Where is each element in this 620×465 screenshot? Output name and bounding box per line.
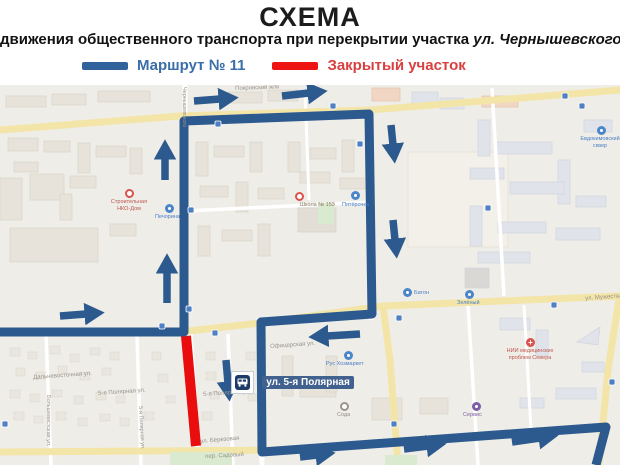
- bus-stop-label: ул. 5-я Полярная: [262, 376, 354, 389]
- zeleny-poi-label: Зелёный: [457, 300, 480, 307]
- legend-closed-label: Закрытый участок: [327, 57, 465, 74]
- bus-icon: [235, 375, 250, 390]
- rusmarket-poi-icon: [344, 351, 353, 360]
- legend: Маршрут № 11 Закрытый участок: [82, 57, 466, 74]
- rusmarket-poi-label: Рус Хозмаркет: [326, 361, 364, 368]
- street-label: Чернышевского: [181, 87, 187, 127]
- servis-poi-icon: [472, 402, 481, 411]
- page-title: СХЕМА: [0, 2, 620, 33]
- header: СХЕМА движения общественного транспорта …: [0, 0, 620, 85]
- medical-poi-label: НИИ медицинских проблем Севера: [500, 348, 560, 361]
- pyaterochka-poi-label: Пятёрочка: [342, 202, 369, 209]
- subtitle-text: движения общественного транспорта при пе…: [0, 31, 473, 48]
- baton-poi-label: Батон: [414, 290, 429, 297]
- skver-poi-icon: [597, 126, 606, 135]
- legend-route-label: Маршрут № 11: [137, 57, 245, 74]
- map-svg: [0, 85, 620, 465]
- soda-poi-icon: [340, 402, 349, 411]
- street-label: Большевистская ул.: [45, 395, 51, 447]
- subtitle-street-name: ул. Чернышевского: [473, 31, 620, 48]
- soda-poi-label: Сода: [337, 412, 350, 419]
- medical-poi-icon: +: [526, 338, 535, 347]
- construction-poi-icon: [125, 189, 134, 198]
- construction-poi-label: Строительная НКО-Дом: [103, 199, 155, 212]
- map: ул. Мужества ул. Березовая Дальневосточн…: [0, 85, 620, 465]
- zeleny-poi-icon: [465, 290, 474, 299]
- route-line-swatch: [82, 62, 128, 70]
- baton-poi-icon: [403, 288, 412, 297]
- servis-poi-label: Сервис: [463, 412, 482, 419]
- skver-poi-label: Евдокимовский сквер: [578, 136, 620, 149]
- bus-stop-marker: [231, 371, 254, 394]
- pyaterochka-poi-icon: [351, 191, 360, 200]
- schema-page: СХЕМА движения общественного транспорта …: [0, 0, 620, 465]
- school-poi-icon: [295, 192, 304, 201]
- pecherina-poi-label: Печорина: [155, 214, 180, 221]
- page-subtitle: движения общественного транспорта при пе…: [0, 31, 620, 48]
- closed-line-swatch: [272, 62, 318, 70]
- pecherina-poi-icon: [165, 204, 174, 213]
- school-poi-label: Школа № 153: [300, 202, 335, 209]
- open-lot: [408, 152, 508, 247]
